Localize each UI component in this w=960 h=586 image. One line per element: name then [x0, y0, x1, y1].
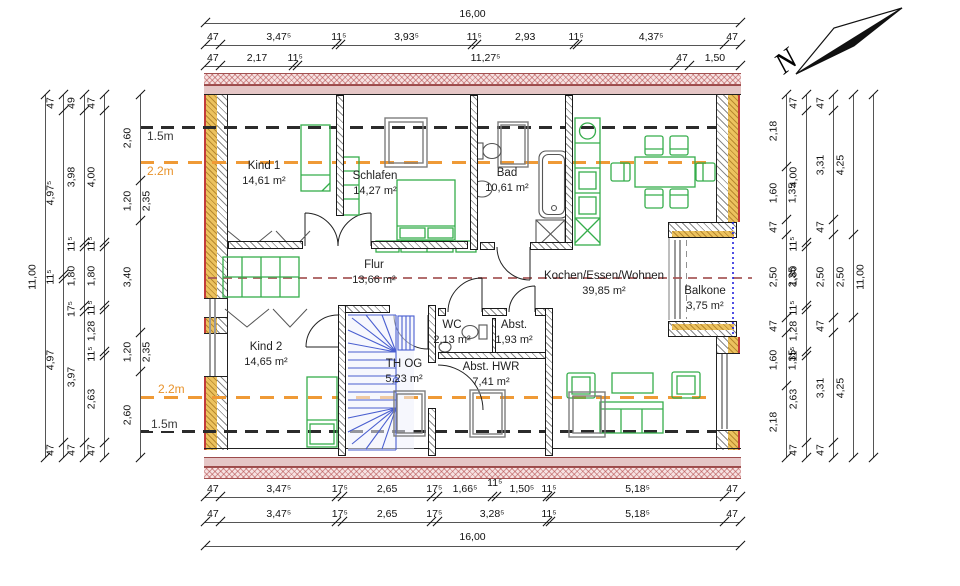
interior-wall-15: [438, 352, 546, 359]
room-label-kind1: Kind 114,61 m²: [242, 159, 285, 188]
room-label-flur: Flur13,66 m²: [352, 258, 395, 287]
dim-label: 47: [726, 509, 738, 520]
room-label-wc: WC2,13 m²: [433, 318, 470, 347]
dim-label: 2,93: [515, 32, 535, 43]
room-name: TH OG: [385, 357, 422, 372]
room-name: Bad: [485, 166, 528, 181]
interior-wall-2: [565, 95, 573, 250]
room-area: 39,85 m²: [544, 284, 664, 298]
interior-wall-8: [338, 305, 346, 456]
floor-plan-canvas: 1.5m 2.2m 2.2m 1.5m: [0, 0, 960, 586]
room-area: 5,23 m²: [385, 372, 422, 386]
generated-layer: 16,00473,47⁵11⁵3,93⁵11⁵2,9311⁵4,37⁵47472…: [0, 0, 960, 586]
interior-wall-11: [438, 308, 446, 316]
room-area: 10,61 m²: [485, 181, 528, 195]
dim-label: 47: [207, 484, 219, 495]
interior-wall-6: [530, 242, 573, 250]
room-name: Kind 1: [242, 159, 285, 174]
dim-label: 5,18⁵: [625, 484, 650, 495]
interior-wall-10: [428, 408, 436, 456]
room-label-balkone: Balkone3,75 m²: [684, 284, 726, 313]
dim-right-total: [873, 95, 874, 458]
interior-wall-5: [480, 242, 495, 250]
dim-right-chain-1: [806, 95, 807, 458]
dim-label: 47: [207, 53, 219, 64]
interior-wall-0: [336, 95, 344, 216]
dim-bottom-row1: [205, 497, 740, 498]
room-area: 3,75 m²: [684, 299, 726, 313]
dim-label: 16,00: [459, 532, 485, 543]
dim-label: 3,28⁵: [480, 509, 505, 520]
dim-label: 3,47⁵: [266, 509, 291, 520]
dim-label: 47: [207, 509, 219, 520]
room-name: Schlafen: [353, 169, 398, 184]
dim-label: 3,93⁵: [394, 32, 419, 43]
dim-top-row3: [205, 66, 740, 67]
room-label-kochen: Kochen/Essen/Wohnen39,85 m²: [544, 269, 664, 298]
room-area: 13,66 m²: [352, 273, 395, 287]
dim-label: 47: [676, 53, 688, 64]
dim-label: 2,17: [247, 53, 267, 64]
dim-left-chain-3: [140, 95, 141, 458]
interior-wall-16: [545, 308, 553, 456]
room-label-abst: Abst.1,93 m²: [495, 318, 532, 347]
dim-label: 47: [207, 32, 219, 43]
room-name: Flur: [352, 258, 395, 273]
room-area: 14,65 m²: [244, 355, 287, 369]
room-name: Kochen/Essen/Wohnen: [544, 269, 664, 284]
dim-label: 1,66⁵: [453, 484, 478, 495]
room-label-kind2: Kind 214,65 m²: [244, 340, 287, 369]
room-area: 14,61 m²: [242, 174, 285, 188]
dim-label: 16,00: [459, 9, 485, 20]
room-name: Balkone: [684, 284, 726, 299]
room-area: 7,41 m²: [463, 375, 520, 389]
dim-label: 1,50: [705, 53, 725, 64]
dim-label: 2,65: [377, 484, 397, 495]
dim-label: 11⁵: [487, 478, 502, 489]
dim-label: 11⁵: [568, 32, 583, 43]
room-label-bad: Bad10,61 m²: [485, 166, 528, 195]
dim-label: 4,37⁵: [639, 32, 664, 43]
interior-wall-4: [371, 241, 468, 249]
dim-label: 47: [726, 484, 738, 495]
room-name: Abst. HWR: [463, 360, 520, 375]
dim-bottom-row2: [205, 522, 740, 523]
room-label-hwr: Abst. HWR7,41 m²: [463, 360, 520, 389]
interior-wall-3: [228, 241, 303, 249]
dim-bottom-total: [205, 546, 740, 547]
dim-label: 3,47⁵: [266, 32, 291, 43]
dim-label: 5,18⁵: [625, 509, 650, 520]
room-area: 1,93 m²: [495, 333, 532, 347]
dim-label: 47: [726, 32, 738, 43]
dim-label: 3,47⁵: [266, 484, 291, 495]
room-name: Abst.: [495, 318, 532, 333]
room-label-thog: TH OG5,23 m²: [385, 357, 422, 386]
room-label-schlafen: Schlafen14,27 m²: [353, 169, 398, 198]
room-name: WC: [433, 318, 470, 333]
room-area: 2,13 m²: [433, 333, 470, 347]
interior-wall-12: [482, 308, 507, 316]
dim-top-total: [205, 23, 740, 24]
room-name: Kind 2: [244, 340, 287, 355]
dim-label: 1,50⁵: [509, 484, 534, 495]
dim-label: 11,27⁵: [471, 53, 501, 64]
interior-wall-1: [470, 95, 478, 250]
dim-left-chain-2: [104, 95, 105, 458]
dim-label: 2,65: [377, 509, 397, 520]
room-area: 14,27 m²: [353, 184, 398, 198]
